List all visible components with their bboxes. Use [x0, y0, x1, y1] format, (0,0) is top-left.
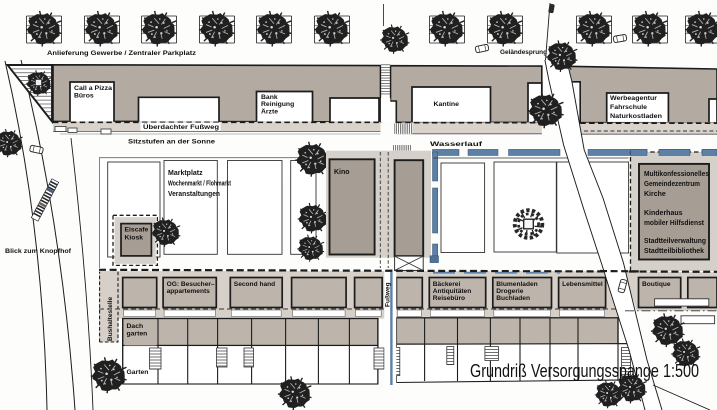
svg-text:Veranstaltungen: Veranstaltungen [168, 191, 220, 198]
svg-text:Kinderhaus: Kinderhaus [644, 210, 683, 217]
svg-text:mobiler Hilfsdienst: mobiler Hilfsdienst [644, 220, 705, 227]
svg-text:Fußweg: Fußweg [385, 282, 392, 307]
svg-text:Grundriß Versorgungsspange 1:5: Grundriß Versorgungsspange 1:500 [470, 360, 699, 381]
svg-text:Wochenmarkt / Flohmarkt: Wochenmarkt / Flohmarkt [168, 180, 231, 187]
svg-text:Ärzte: Ärzte [261, 107, 278, 115]
svg-text:Drogerie: Drogerie [496, 288, 523, 295]
svg-text:Bäckerei: Bäckerei [433, 281, 461, 288]
svg-text:Kirche: Kirche [644, 191, 666, 198]
svg-text:Lebensmittel: Lebensmittel [562, 281, 603, 288]
svg-text:Buchladen: Buchladen [496, 295, 530, 302]
svg-text:Eiscafe: Eiscafe [125, 227, 149, 234]
svg-text:Antiquitäten: Antiquitäten [433, 288, 471, 295]
svg-text:Garten: Garten [127, 369, 149, 376]
svg-text:Gemeindezentrum: Gemeindezentrum [644, 181, 700, 188]
svg-text:Marktplatz: Marktplatz [168, 170, 203, 177]
svg-text:Büros: Büros [74, 93, 94, 100]
svg-text:Boutique: Boutique [642, 281, 671, 288]
svg-text:Werbeagentur: Werbeagentur [610, 95, 657, 102]
svg-text:Dach: Dach [127, 323, 144, 330]
svg-text:garten: garten [127, 331, 148, 338]
svg-text:Geländesprung: Geländesprung [500, 49, 547, 56]
svg-text:appartements: appartements [167, 288, 211, 295]
svg-text:OG: Besucher–: OG: Besucher– [167, 281, 215, 288]
svg-text:Stadtteilverwaltung: Stadtteilverwaltung [644, 238, 706, 245]
svg-text:Wasserlauf: Wasserlauf [430, 141, 483, 148]
svg-text:Reinigung: Reinigung [261, 101, 294, 108]
svg-text:Bushaltestelle: Bushaltestelle [107, 297, 114, 341]
svg-text:Second hand: Second hand [234, 281, 275, 288]
svg-text:Kantine: Kantine [434, 101, 460, 108]
svg-text:Sitzstufen an der Sonne: Sitzstufen an der Sonne [128, 139, 215, 146]
svg-text:Stadtteilbibliothek: Stadtteilbibliothek [644, 248, 704, 255]
svg-text:Kiosk: Kiosk [125, 234, 144, 241]
svg-text:Blick zum Knopfhof: Blick zum Knopfhof [5, 248, 72, 255]
svg-text:Anlieferung Gewerbe / Zentrale: Anlieferung Gewerbe / Zentraler Parkplat… [47, 50, 197, 57]
svg-text:Reisebüro: Reisebüro [433, 295, 465, 302]
svg-text:Kino: Kino [334, 169, 350, 176]
svg-text:Multikonfessionelles: Multikonfessionelles [644, 171, 709, 178]
svg-text:Call a Pizza: Call a Pizza [74, 85, 112, 92]
svg-text:Überdachter Fußweg: Überdachter Fußweg [143, 122, 219, 131]
svg-text:Bank: Bank [261, 94, 278, 101]
svg-text:Blumenladen: Blumenladen [496, 281, 537, 288]
svg-text:Naturkostladen: Naturkostladen [610, 113, 662, 120]
svg-text:Fahrschule: Fahrschule [610, 104, 647, 111]
